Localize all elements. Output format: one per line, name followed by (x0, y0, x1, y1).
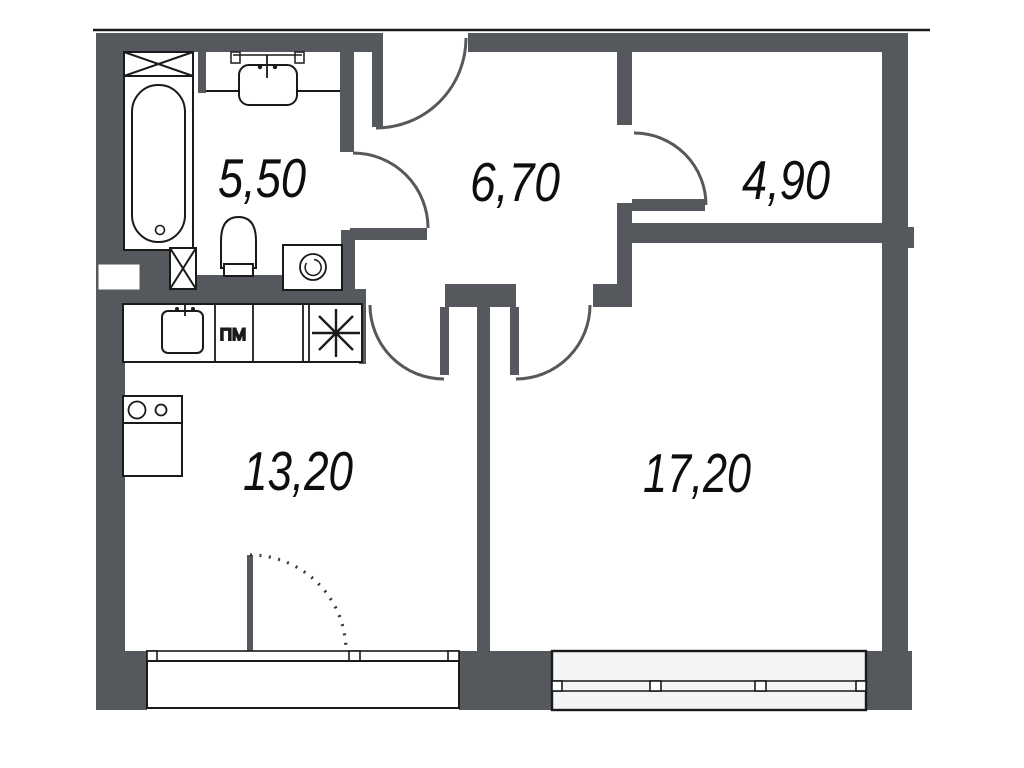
bathroom-door-leaf (350, 228, 427, 240)
toilet-icon (221, 217, 256, 268)
room-label-living: 17,20 (643, 442, 751, 504)
kitchen-faucet-dot-right (191, 307, 195, 311)
kitchen-door-leaf (440, 307, 449, 375)
bathtub-inner (132, 85, 185, 242)
kitchen-sink-icon (162, 311, 203, 353)
cooktop-burner-large (129, 402, 146, 419)
wall-block-bottom-left (96, 651, 147, 710)
kitchen-door-arc (370, 305, 444, 379)
wall-left (96, 33, 125, 651)
living-window-post-3 (755, 681, 766, 691)
entry-door-leaf (372, 33, 383, 127)
burner-symbol-icon (312, 309, 360, 357)
wall-block-bottom-middle (459, 651, 552, 710)
wall-block-bottom-right (866, 651, 912, 710)
bath-sink-tab-right (295, 52, 304, 63)
room-label-bathroom: 5,50 (218, 147, 306, 209)
wall-right (882, 52, 908, 651)
bath-sink-handle-right (273, 65, 277, 69)
living-door-arc (516, 305, 590, 379)
wardrobe-door-arc (634, 133, 706, 205)
wall-sink-stub (198, 51, 206, 93)
kitchen-faucet-dot-left (175, 307, 179, 311)
balcony-door-jamb (247, 555, 253, 652)
bath-sink-bowl-icon (239, 65, 297, 105)
living-window-post-4 (856, 681, 866, 691)
wardrobe-door-leaf (632, 199, 705, 211)
bath-sink-tab-left (231, 52, 240, 63)
living-window-post-2 (650, 681, 661, 691)
bathtub-drain (156, 226, 165, 235)
wall-top-right (468, 33, 908, 52)
room-label-hallway: 6,70 (470, 151, 560, 213)
wall-hall-tee (445, 284, 516, 307)
kitchen-balcony (147, 661, 459, 708)
wall-right-step (896, 227, 914, 248)
balcony-door-dotted-arc (250, 555, 346, 651)
wall-niche (98, 264, 140, 290)
dishwasher-label: ПМ (220, 325, 246, 344)
kitchen-cabinet-icon (123, 423, 182, 476)
kitchen-window-post-1 (147, 651, 157, 661)
wall-kitchen-living-divider (477, 307, 490, 651)
room-label-kitchen: 13,20 (243, 440, 353, 502)
wall-wardrobe-left-lower (617, 203, 632, 307)
toilet-base (224, 264, 253, 276)
room-label-wardrobe: 4,90 (742, 149, 830, 211)
entry-door-arc (376, 38, 466, 128)
wall-top-left (96, 33, 372, 52)
wall-wardrobe-left-upper (617, 52, 632, 125)
floor-plan-canvas: ПМ 5,50 6,70 4,90 13,20 17,20 (0, 0, 1024, 768)
wall-wardrobe-living (632, 223, 882, 243)
bath-sink-handle-left (258, 65, 262, 69)
living-door-leaf (510, 307, 519, 375)
kitchen-window-post-2 (349, 651, 360, 661)
living-window-post-1 (552, 681, 562, 691)
kitchen-window-band (147, 651, 459, 661)
wall-bathroom-right-upper (340, 52, 354, 152)
floor-plan-page: ПМ 5,50 6,70 4,90 13,20 17,20 (0, 0, 1024, 768)
cooktop-burner-small (156, 405, 167, 416)
kitchen-window-post-3 (448, 651, 459, 661)
bathroom-door-arc (353, 153, 428, 228)
wall-bathroom-duct (196, 275, 283, 291)
